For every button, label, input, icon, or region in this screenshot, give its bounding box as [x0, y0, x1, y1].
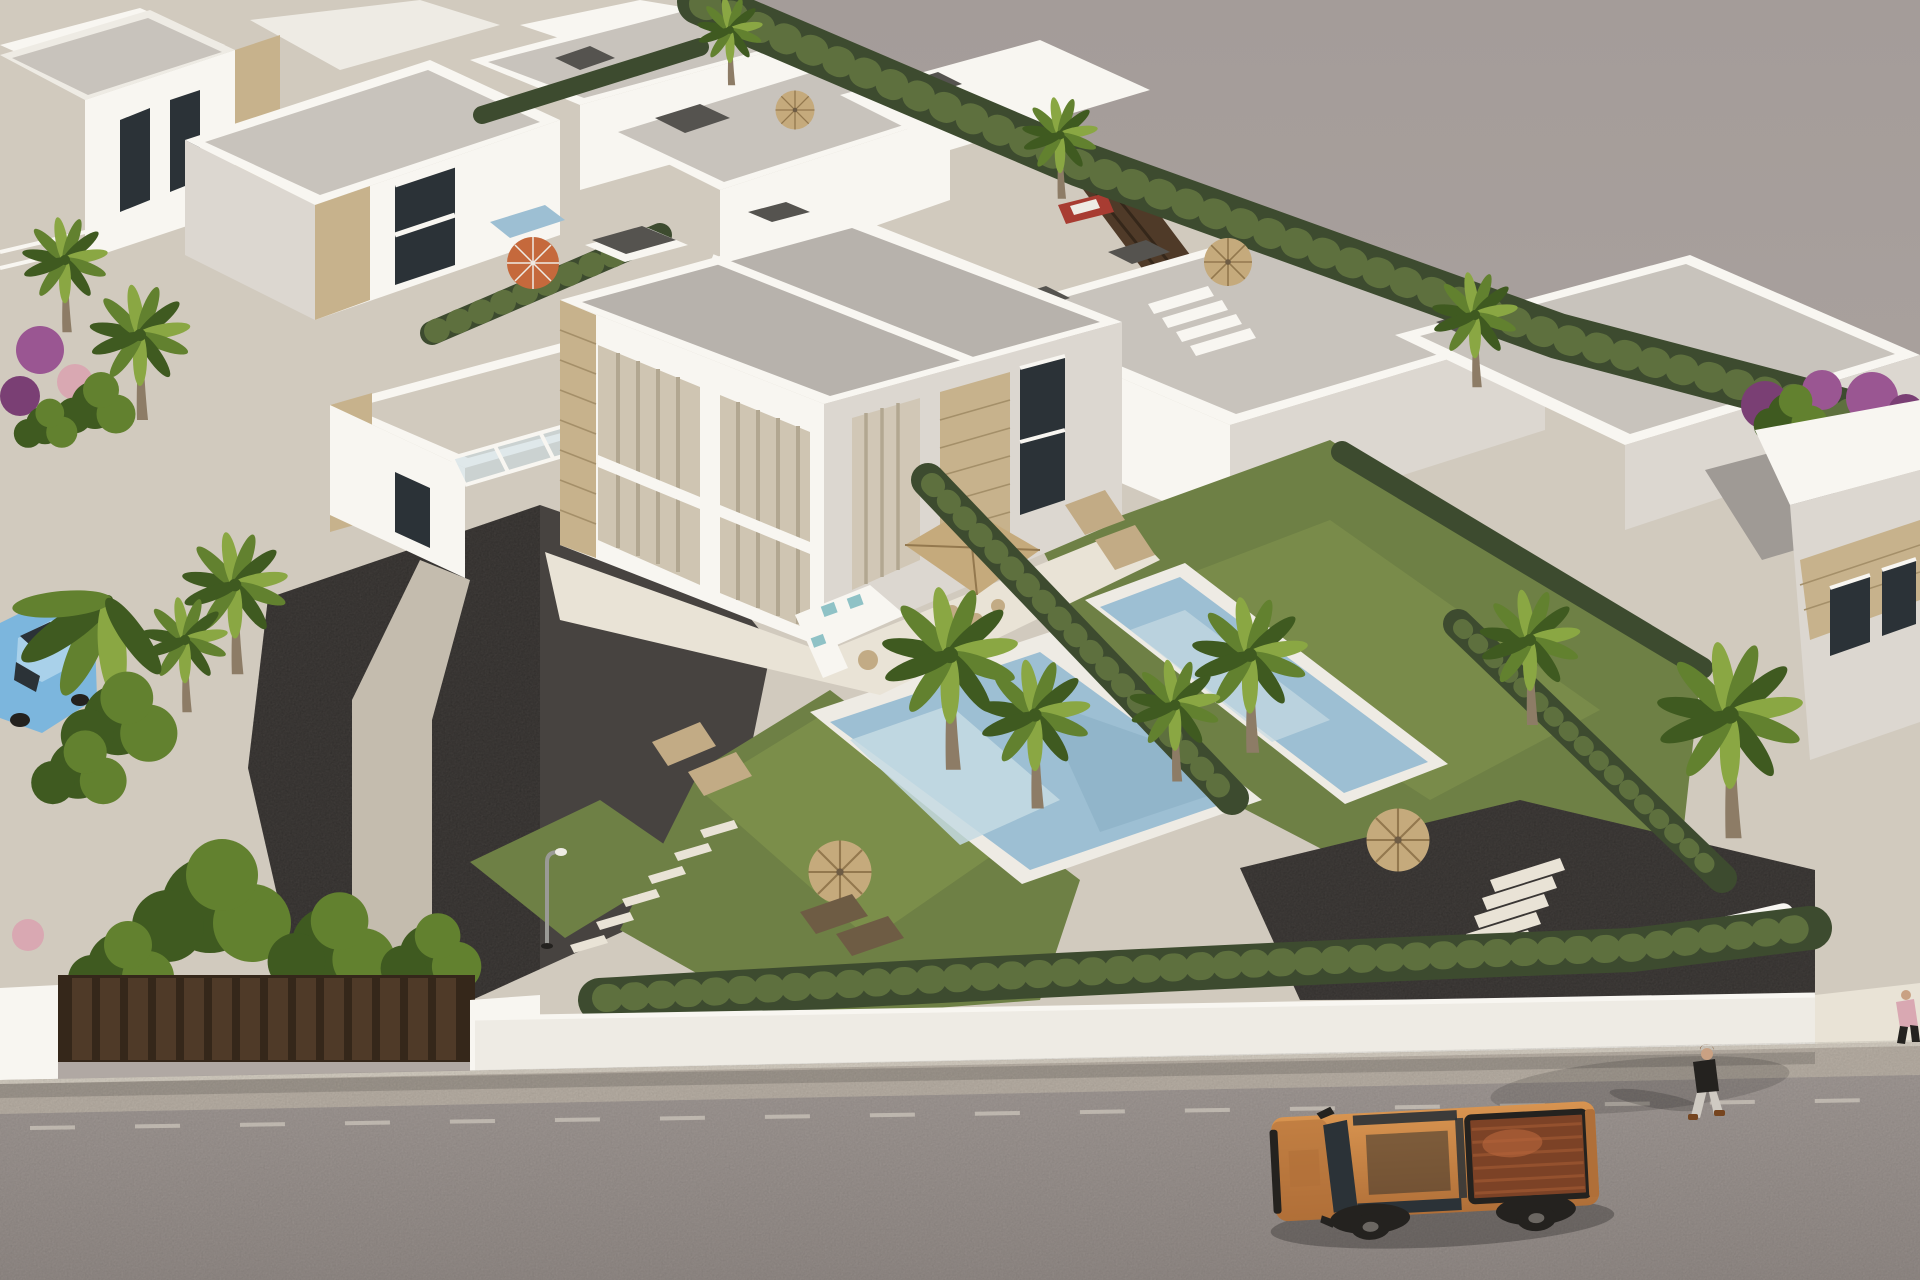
- coffee-table: [858, 650, 878, 670]
- orange-parasol: [507, 237, 559, 289]
- aerial-villa-render: [0, 0, 1920, 1280]
- wall-pillar: [0, 985, 58, 1082]
- thatched-parasol: [1204, 238, 1252, 286]
- window-bay-shaded: [852, 398, 920, 590]
- thatched-parasol: [809, 841, 872, 904]
- truck-bed: [1467, 1111, 1589, 1201]
- thatched-parasol-top: [776, 91, 815, 130]
- pickup-truck: [1264, 1092, 1615, 1256]
- thatched-parasol: [1367, 809, 1430, 872]
- hood-scoop: [1288, 1149, 1320, 1187]
- window-bay: [720, 395, 810, 630]
- cab-interior: [1366, 1131, 1451, 1195]
- stone-pillar: [560, 300, 596, 558]
- render-canvas: [0, 0, 1920, 1280]
- jacket: [1693, 1059, 1719, 1093]
